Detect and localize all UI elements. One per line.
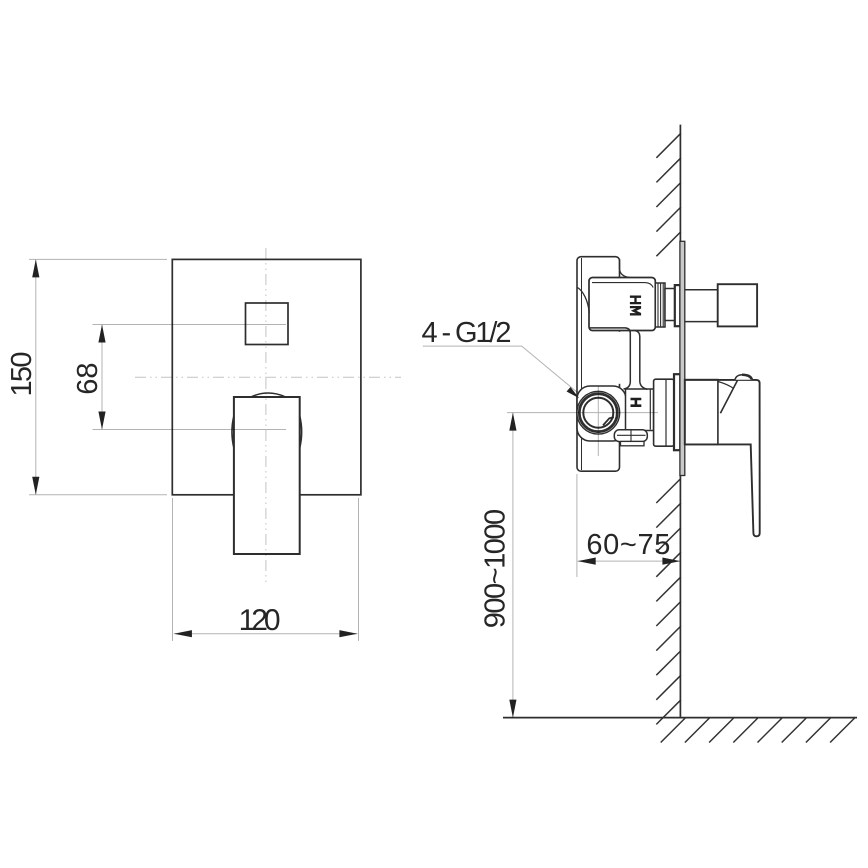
svg-text:4 - G1/2: 4 - G1/2 — [422, 317, 512, 349]
svg-text:150: 150 — [6, 352, 38, 397]
svg-text:68: 68 — [72, 363, 104, 395]
svg-text:60~75: 60~75 — [586, 529, 670, 561]
svg-text:120: 120 — [239, 604, 281, 637]
svg-text:900~1000: 900~1000 — [480, 509, 512, 629]
